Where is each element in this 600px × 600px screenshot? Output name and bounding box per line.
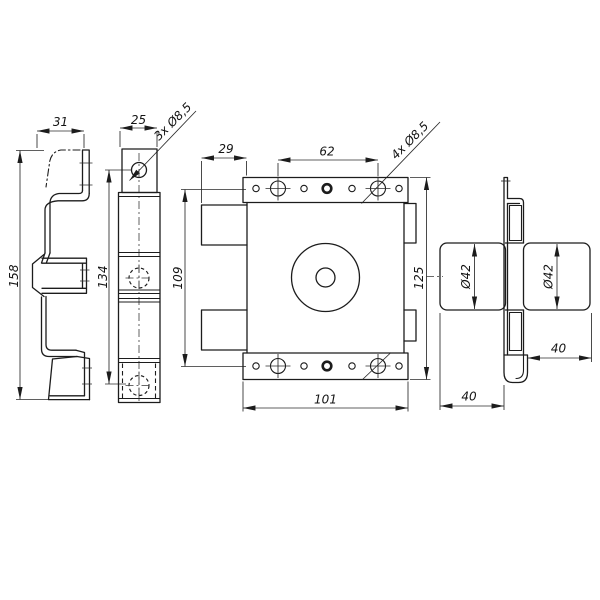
- left-tab-top: [202, 205, 248, 245]
- dimension-side-height: 158: [7, 151, 48, 400]
- lock-technical-drawing: 31 158 25 134: [0, 0, 600, 600]
- dimension-side-width: 31: [37, 115, 84, 148]
- dim-label-125: 125: [412, 267, 426, 290]
- dim-label-134: 134: [96, 266, 110, 289]
- view-faceplate-front: 25 134 3x Ø8,5: [96, 100, 196, 403]
- dimension-hole-spacing-horizontal: 62: [278, 145, 378, 177]
- left-tab-bottom: [202, 310, 248, 350]
- right-tab-top: [404, 204, 416, 244]
- dim-label-d42-right: Ø42: [542, 264, 556, 290]
- dimension-hole-spacing-vertical: 109: [171, 190, 246, 367]
- dim-label-40-right: 40: [551, 342, 567, 356]
- view-lock-body-front: 29 62 4x Ø8,5 109 125 101: [171, 119, 440, 412]
- view-lock-body-side: Ø42 Ø42 40 40: [426, 178, 592, 411]
- flange-holes-top: [253, 177, 402, 201]
- hole-note-label-4x: 4x Ø8,5: [388, 119, 431, 162]
- dim-label-40-left: 40: [461, 390, 477, 404]
- dim-label-62: 62: [319, 145, 334, 159]
- dimension-body-width: 101: [243, 382, 408, 412]
- dim-label-109: 109: [171, 267, 185, 290]
- dim-label-25: 25: [131, 113, 146, 127]
- hole-note-3x-d85: 3x Ø8,5: [130, 100, 197, 181]
- dim-label-158: 158: [7, 264, 21, 287]
- dimension-faceplate-hole-spacing: 134: [96, 170, 131, 384]
- cylinder-boss-circle: [292, 244, 360, 312]
- view-strike-side-profile: 31 158: [7, 115, 93, 400]
- hole-note-label-3x: 3x Ø8,5: [151, 100, 194, 143]
- dim-label-101: 101: [314, 393, 337, 407]
- latch-bolt-side: [42, 258, 87, 293]
- cylinder-bore-circle: [316, 268, 335, 287]
- body-outline: [247, 203, 404, 354]
- dimension-body-height: 125: [410, 178, 431, 380]
- technical-drawing-canvas: 31 158 25 134: [0, 0, 600, 600]
- dim-label-d42-left: Ø42: [459, 264, 473, 290]
- dimension-outer-cylinder-diameter: Ø42: [459, 244, 475, 309]
- dimension-outer-cylinder-length: 40: [440, 313, 504, 410]
- dimension-faceplate-width: 25: [120, 113, 157, 147]
- right-tab-bottom: [404, 310, 416, 341]
- flange-holes-bottom: [253, 353, 402, 380]
- dim-label-31: 31: [53, 115, 68, 129]
- dimension-inner-cylinder-length: 40: [528, 313, 592, 362]
- bent-tab-phantom-line: [46, 150, 80, 187]
- dimension-inner-cylinder-diameter: Ø42: [542, 244, 558, 309]
- dim-label-29: 29: [218, 142, 233, 156]
- dimension-tab-offset: 29: [202, 142, 247, 203]
